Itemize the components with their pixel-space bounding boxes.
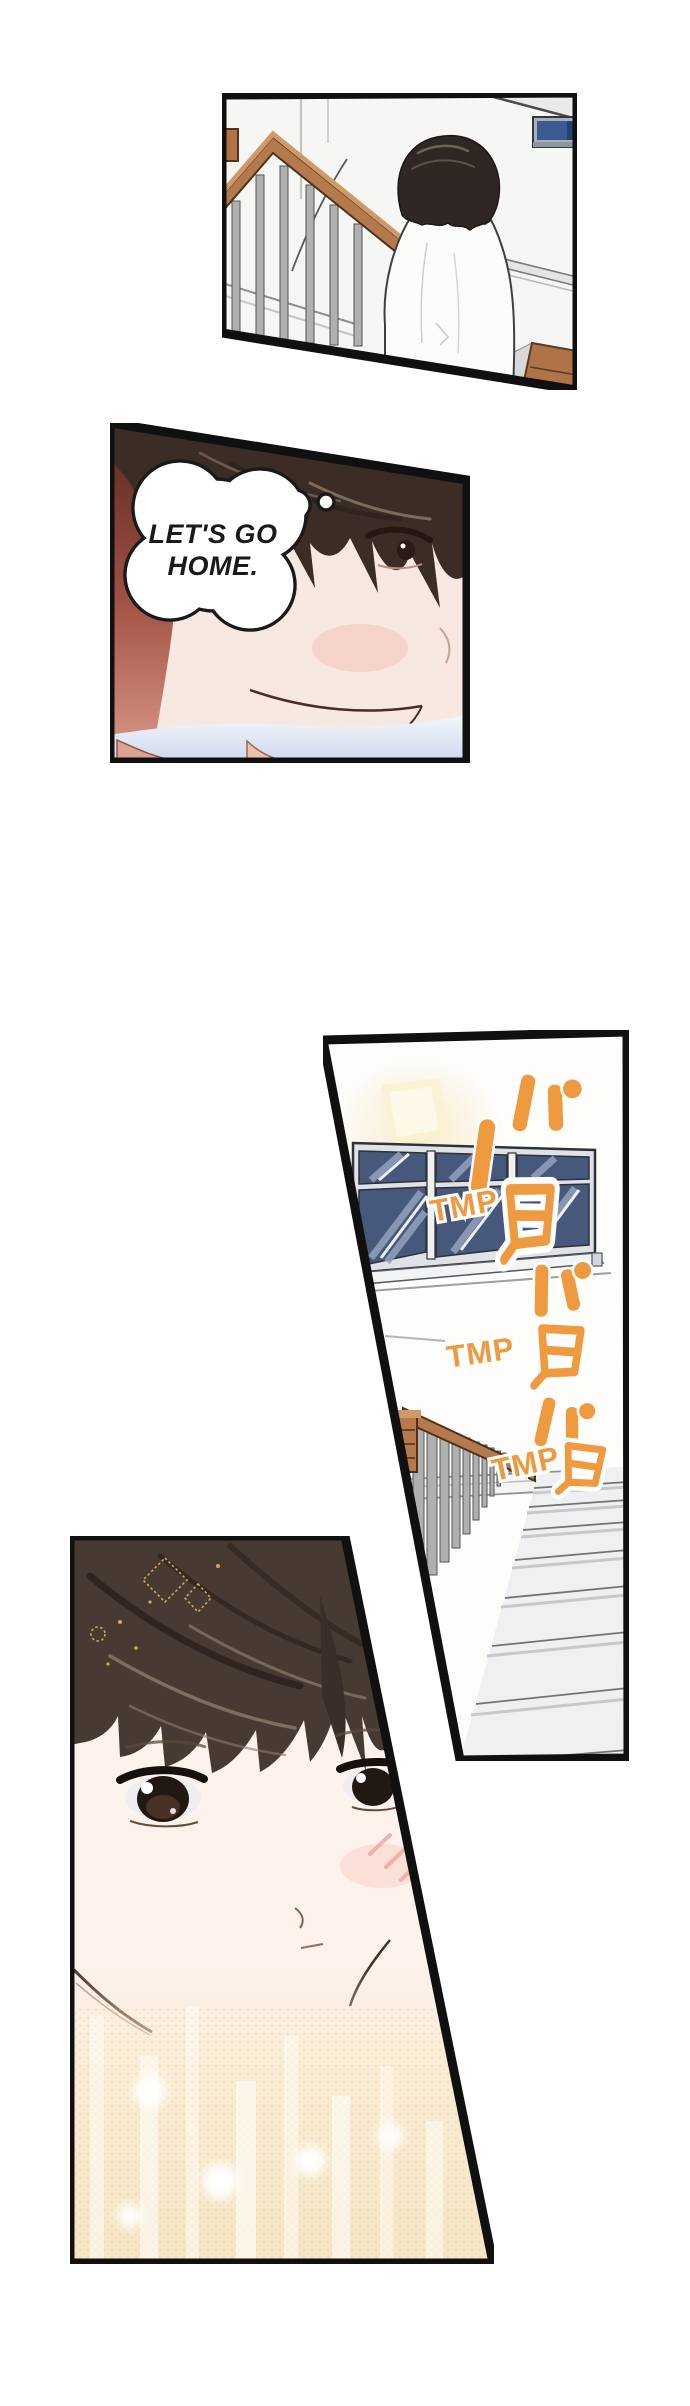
hair [398,136,499,230]
sfx-kana-ta-3: タ [558,1444,602,1498]
sfx-kana-ta-2: タ [534,1326,581,1389]
thought-text-line1: LET'S GO [149,519,278,549]
panel-1-stairwell [222,93,577,390]
panel-2-face-profile: LET'S GO HOME. [110,423,470,763]
manga-page: LET'S GO HOME. [0,0,690,2406]
person-back-view [385,136,515,390]
cheek-blush [312,624,408,672]
thought-text-line2: HOME. [167,551,258,581]
panel-4-face-closeup [70,1536,494,2264]
sfx-kana-ta-1: タ [504,1187,551,1262]
bubble-dot [318,494,334,510]
blue-wall-sign [533,117,577,147]
golden-glow [70,1966,494,2264]
